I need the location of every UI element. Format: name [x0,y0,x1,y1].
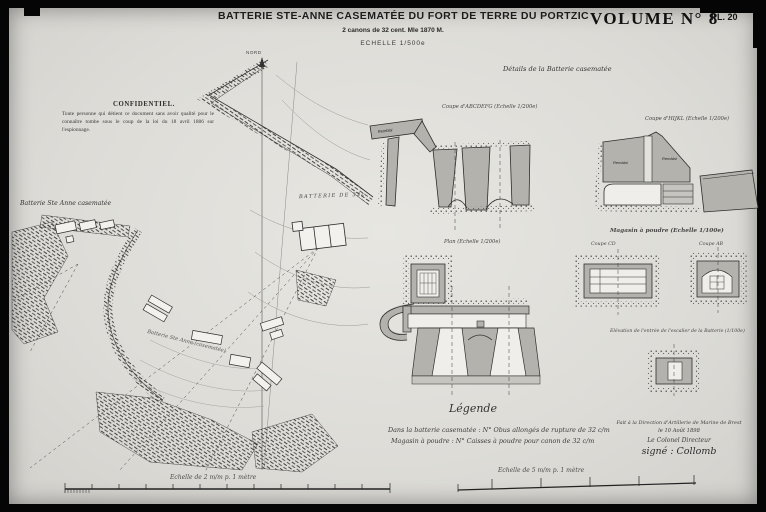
section-hijkl-caption: Coupe d'HIJKL (Echelle 1/200e) [645,116,729,122]
battery-32c-footprint [292,216,346,251]
slope-stipple [596,142,601,206]
north-label: NORD [246,50,262,56]
scale-left-caption: Echelle de 2 m/m p. 1 mètre [170,474,256,481]
signature-line-1: Fait à la Direction d'Artillerie de Mari… [604,420,754,426]
scale-bar-right [458,475,696,492]
legend-line-1: Dans la batterie casematée : N° Obus all… [388,427,610,435]
scale-right-caption: Echelle de 5 m/m p. 1 mètre [498,467,584,474]
plan-caption: Plan (Echelle 1/200e) [444,239,500,245]
site-plan-label: Batterie Ste Anne casematée [20,200,111,207]
elevation-door [668,362,682,380]
details-heading: Détails de la Batterie casematée [503,66,598,74]
plan-gun-room [408,314,526,328]
volume-number: VOLUME N° 8 [590,9,702,29]
site-buildings [55,213,287,393]
signature-line-4: signé : Collomb [604,446,754,457]
ground-stipple-left [380,142,384,206]
ground-stipple [598,208,700,210]
revetment-wall [700,170,758,212]
banquette-steps [663,184,693,204]
plan-base-band [412,376,540,384]
magazine-heading: Magasin à poudre (Echelle 1/100e) [610,228,724,235]
confidentiel-body: Toute personne qui détient ce document s… [62,111,214,134]
rock-masses [12,215,338,472]
legend-heading: Légende [428,402,518,415]
section-abcdefg-drawing: Remblai [370,119,535,230]
battery-plan-drawing [380,258,540,398]
section-hijkl-drawing: Remblai Remblai [596,132,758,212]
plate-scale-note: ECHELLE 1/500e [218,40,568,48]
signature-line-2: le 10 Août 1898 [604,428,754,434]
plate-title: BATTERIE STE-ANNE CASEMATÉE DU FORT DE T… [218,10,568,23]
remblai-label: Remblai [613,160,628,165]
vault-room [604,184,661,205]
elevation-caption: Elévation de l'entrée de l'escalier de l… [610,329,745,335]
ground-stipple-bottom [430,208,535,211]
magazine-sections-drawing [578,247,744,315]
section-abcdefg-caption: Coupe d'ABCDEFG (Echelle 1/200e) [442,104,537,110]
plate-number: PL. 20 [711,12,738,23]
scanned-plate-page: Remblai Remblai Remblai [0,0,766,512]
plate-subtitle: 2 canons de 32 cent. Mle 1870 M. [218,27,568,35]
remblai-label: Remblai [662,156,677,161]
magazine-cd-caption: Coupe CD [591,242,616,248]
plan-caisses-grid [420,273,436,294]
scale-bar-left [65,483,390,493]
secondary-bearing-line [264,62,297,468]
legend-line-2: Magasin à poudre : N° Caisses à poudre p… [391,438,594,446]
confidentiel-heading: CONFIDENTIEL. [75,101,213,109]
entrance-elevation-drawing [650,344,698,396]
rampart-glacis-band [206,63,371,201]
plan-traverse-nub [477,321,484,327]
plan-top-wall [403,306,529,314]
signature-line-3: Le Colonel Directeur [604,437,754,444]
plate-drawing: Remblai Remblai Remblai [0,0,766,512]
magazine-ab-caption: Coupe AB [699,242,723,248]
rampart-crest-line [209,60,373,197]
